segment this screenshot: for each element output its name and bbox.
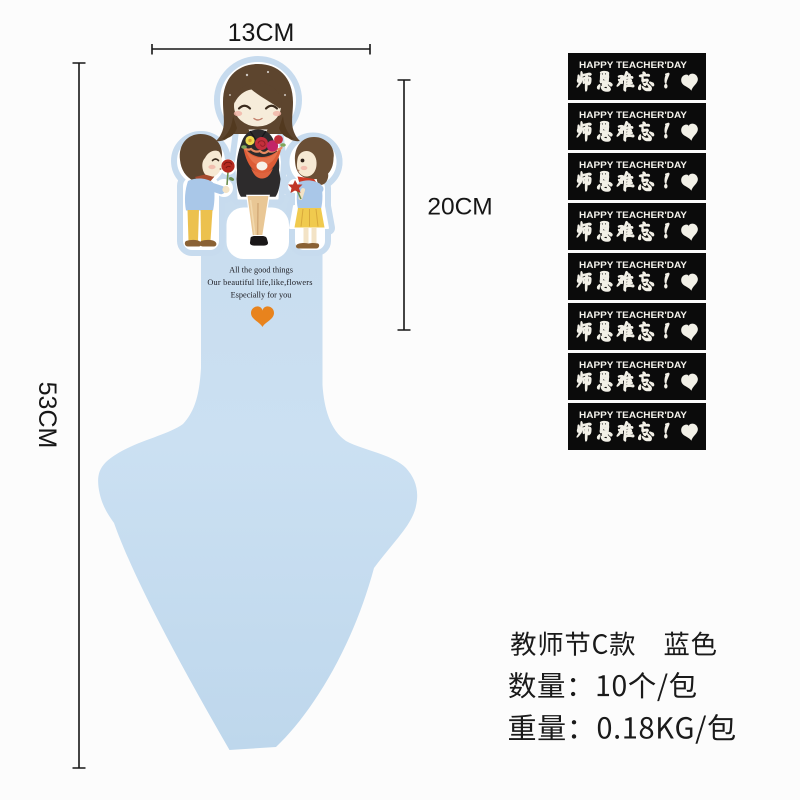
svg-text:Especially for you: Especially for you [231, 291, 292, 300]
svg-text:20CM: 20CM [427, 194, 492, 221]
svg-text:All the good things: All the good things [229, 266, 293, 275]
svg-text:13CM: 13CM [228, 19, 295, 47]
svg-text:Our beautiful life,like,flower: Our beautiful life,like,flowers [207, 278, 312, 287]
svg-text:53CM: 53CM [33, 382, 61, 449]
